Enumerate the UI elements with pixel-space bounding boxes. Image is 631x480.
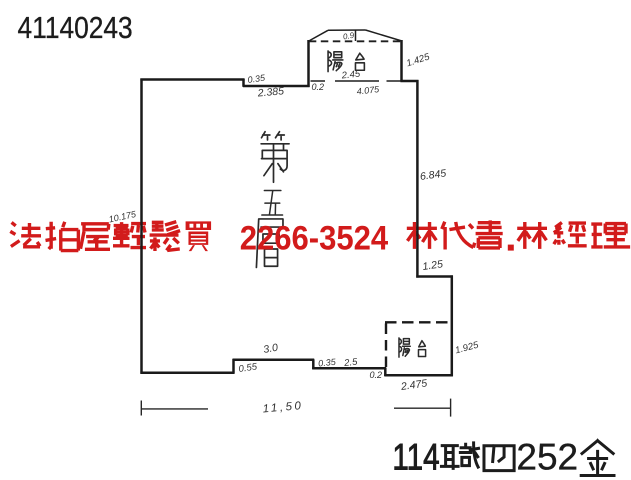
svg-text:41140243: 41140243 [18,11,133,45]
svg-text:0.2: 0.2 [312,82,325,92]
svg-text:114: 114 [392,437,439,478]
svg-text:0.35: 0.35 [318,357,337,369]
svg-text:0.2: 0.2 [370,370,383,380]
svg-text:2266-3524: 2266-3524 [240,218,389,257]
svg-text:2.385: 2.385 [256,85,284,99]
svg-text:252: 252 [516,436,578,477]
svg-text:3.0: 3.0 [262,342,279,356]
